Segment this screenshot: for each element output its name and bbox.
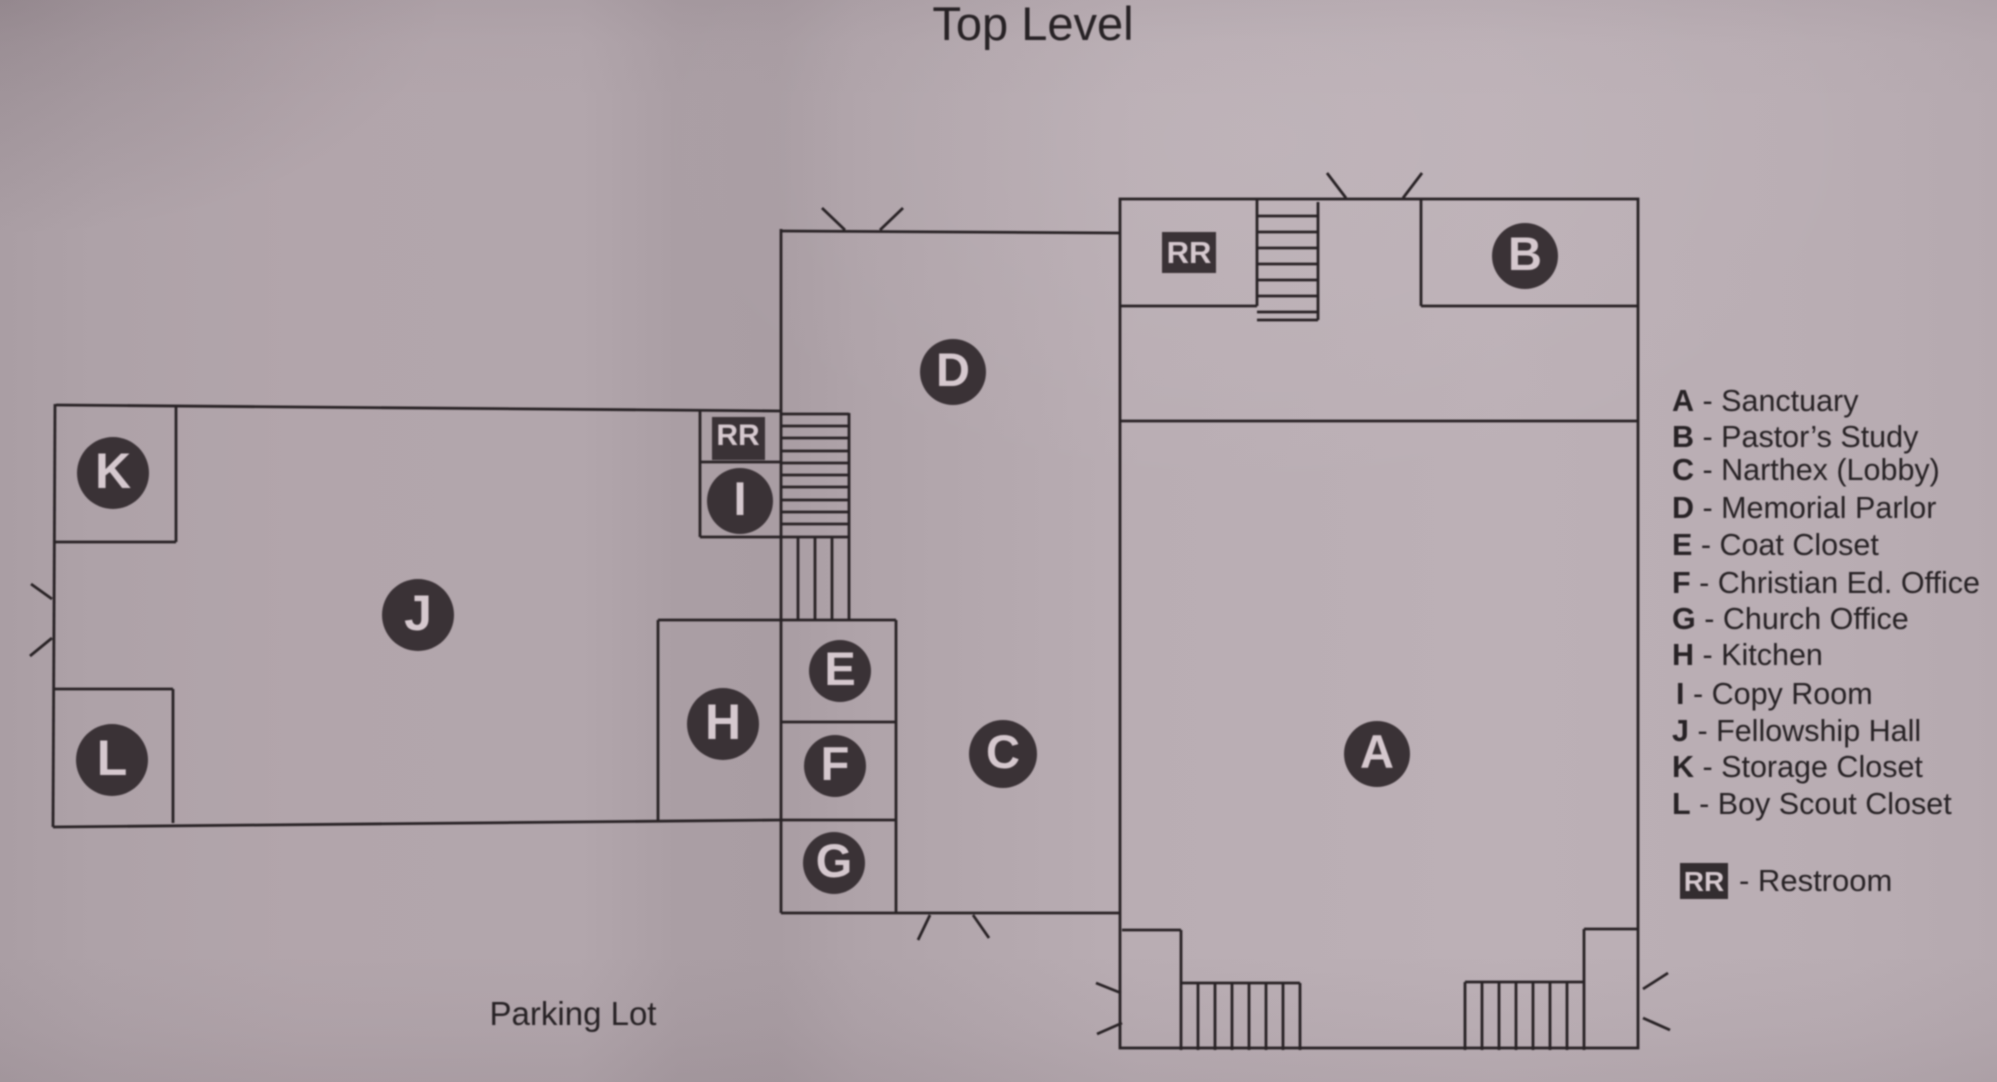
svg-text:H: H bbox=[705, 694, 741, 750]
svg-text:I: I bbox=[733, 472, 746, 525]
svg-text:E - Coat Closet: E - Coat Closet bbox=[1672, 528, 1879, 562]
svg-text:J: J bbox=[404, 585, 432, 641]
svg-text:B: B bbox=[1508, 227, 1542, 280]
svg-text:A: A bbox=[1360, 725, 1394, 778]
svg-text:L: L bbox=[97, 730, 128, 786]
svg-text:G - Church Office: G - Church Office bbox=[1672, 602, 1909, 636]
svg-text:I - Copy Room: I - Copy Room bbox=[1676, 677, 1873, 711]
svg-text:A - Sanctuary: A - Sanctuary bbox=[1672, 384, 1859, 418]
svg-text:RR: RR bbox=[716, 419, 760, 452]
svg-text:RR: RR bbox=[1684, 866, 1724, 897]
svg-text:J - Fellowship Hall: J - Fellowship Hall bbox=[1672, 714, 1921, 748]
svg-text:D: D bbox=[936, 343, 970, 396]
svg-text:K: K bbox=[95, 443, 131, 499]
svg-text:G: G bbox=[816, 834, 853, 887]
svg-text:RR: RR bbox=[1167, 235, 1212, 270]
svg-text:B - Pastor’s Study: B - Pastor’s Study bbox=[1672, 420, 1919, 454]
svg-text:E: E bbox=[824, 642, 855, 695]
svg-text:Top Level: Top Level bbox=[932, 0, 1133, 50]
svg-text:- Restroom: - Restroom bbox=[1739, 863, 1892, 898]
svg-text:C: C bbox=[986, 725, 1020, 778]
svg-text:Parking Lot: Parking Lot bbox=[490, 995, 657, 1032]
svg-text:C - Narthex (Lobby): C - Narthex (Lobby) bbox=[1672, 453, 1940, 487]
svg-text:L - Boy Scout Closet: L - Boy Scout Closet bbox=[1672, 787, 1952, 821]
svg-text:K - Storage Closet: K - Storage Closet bbox=[1672, 750, 1923, 784]
svg-text:D - Memorial Parlor: D - Memorial Parlor bbox=[1672, 491, 1936, 525]
svg-text:F: F bbox=[821, 737, 850, 790]
svg-text:H - Kitchen: H - Kitchen bbox=[1672, 638, 1823, 672]
svg-text:F - Christian Ed. Office: F - Christian Ed. Office bbox=[1672, 566, 1980, 600]
